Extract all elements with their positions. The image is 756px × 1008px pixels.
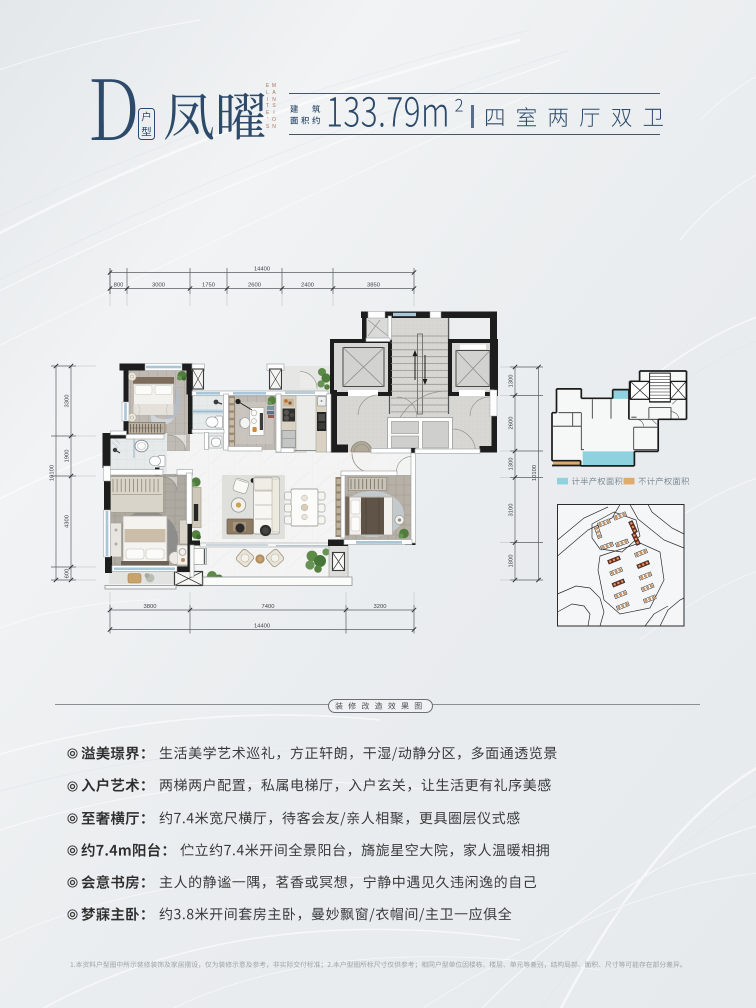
svg-text:3800: 3800 <box>144 604 157 610</box>
svg-text:3200: 3200 <box>374 604 387 610</box>
svg-text:10100: 10100 <box>532 465 538 481</box>
svg-text:1900: 1900 <box>65 450 71 463</box>
svg-text:7400: 7400 <box>262 604 275 610</box>
svg-text:1800: 1800 <box>509 555 515 568</box>
svg-text:2600: 2600 <box>248 283 261 289</box>
svg-text:3000: 3000 <box>152 283 165 289</box>
svg-text:3100: 3100 <box>509 504 515 517</box>
svg-text:14400: 14400 <box>254 267 270 273</box>
svg-text:3850: 3850 <box>367 283 380 289</box>
svg-text:2600: 2600 <box>509 417 515 430</box>
svg-text:3300: 3300 <box>65 395 71 408</box>
svg-text:2400: 2400 <box>301 283 314 289</box>
svg-text:600: 600 <box>65 569 71 579</box>
svg-text:4300: 4300 <box>65 515 71 528</box>
svg-text:14400: 14400 <box>254 624 270 630</box>
svg-text:1300: 1300 <box>509 375 515 388</box>
svg-text:1750: 1750 <box>202 283 215 289</box>
svg-text:800: 800 <box>114 283 124 289</box>
svg-text:1300: 1300 <box>509 458 515 471</box>
svg-text:10100: 10100 <box>50 465 56 481</box>
